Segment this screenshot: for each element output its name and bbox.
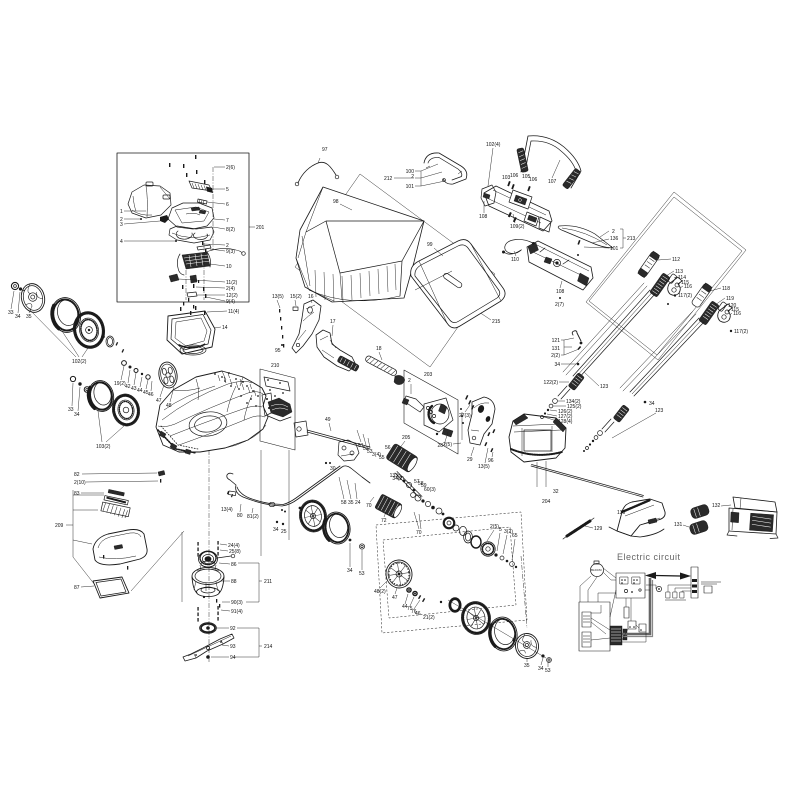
svg-text:13(5): 13(5): [272, 294, 284, 300]
svg-text:86: 86: [231, 562, 237, 568]
svg-text:132: 132: [712, 503, 721, 509]
svg-text:7: 7: [226, 218, 229, 224]
svg-text:2(10): 2(10): [74, 480, 86, 486]
svg-text:130: 130: [617, 510, 626, 516]
svg-text:92: 92: [230, 626, 236, 632]
svg-text:25: 25: [281, 529, 287, 535]
svg-text:131: 131: [552, 346, 561, 352]
svg-text:117(2): 117(2): [678, 293, 692, 299]
svg-text:33: 33: [8, 310, 14, 316]
svg-text:106: 106: [510, 173, 519, 179]
svg-text:70: 70: [366, 503, 372, 509]
svg-text:119: 119: [726, 296, 734, 302]
svg-text:211: 211: [264, 579, 272, 585]
svg-text:82: 82: [74, 472, 80, 478]
svg-text:35: 35: [348, 500, 354, 506]
svg-text:121: 121: [552, 338, 561, 344]
svg-text:32: 32: [553, 489, 559, 495]
svg-text:BLDCM: BLDCM: [591, 568, 602, 572]
svg-text:33: 33: [68, 407, 74, 413]
svg-text:15(2): 15(2): [290, 294, 302, 300]
svg-text:34: 34: [15, 314, 21, 320]
svg-text:204: 204: [542, 499, 551, 505]
svg-text:108: 108: [556, 289, 565, 295]
svg-text:34: 34: [273, 527, 279, 533]
svg-text:129: 129: [594, 526, 603, 532]
svg-text:35: 35: [26, 314, 32, 320]
svg-text:6: 6: [226, 202, 229, 208]
svg-text:97: 97: [322, 147, 328, 153]
svg-text:2(4): 2(4): [226, 286, 235, 292]
svg-text:99: 99: [427, 242, 433, 248]
svg-text:93: 93: [230, 644, 236, 650]
svg-text:46: 46: [148, 392, 154, 398]
svg-text:95: 95: [275, 348, 281, 354]
svg-text:3: 3: [120, 222, 123, 228]
svg-text:87: 87: [74, 585, 80, 591]
svg-text:29: 29: [467, 457, 473, 463]
svg-text:214: 214: [264, 644, 273, 650]
svg-text:48(2): 48(2): [374, 589, 386, 595]
svg-text:34: 34: [538, 666, 544, 672]
svg-text:13(4): 13(4): [221, 507, 233, 513]
svg-text:53: 53: [359, 571, 365, 577]
svg-text:103(2): 103(2): [96, 444, 111, 450]
svg-text:91(4): 91(4): [231, 609, 243, 615]
svg-text:28: 28: [437, 443, 443, 449]
svg-text:101: 101: [610, 246, 619, 252]
svg-text:81(2): 81(2): [247, 514, 259, 520]
svg-text:58: 58: [341, 500, 347, 506]
svg-text:34: 34: [554, 362, 560, 368]
svg-text:2: 2: [408, 378, 411, 384]
svg-text:65: 65: [512, 533, 518, 539]
svg-text:80: 80: [237, 513, 243, 519]
svg-text:5: 5: [226, 187, 229, 193]
svg-text:123: 123: [655, 408, 664, 414]
svg-text:43: 43: [131, 386, 137, 392]
svg-text:101: 101: [406, 184, 415, 190]
svg-text:122(2): 122(2): [544, 380, 559, 386]
svg-text:70: 70: [416, 530, 422, 536]
svg-text:13(5): 13(5): [478, 464, 490, 470]
svg-text:34(2): 34(2): [392, 476, 404, 482]
svg-text:53: 53: [545, 668, 551, 674]
svg-text:2: 2: [612, 229, 615, 235]
svg-text:72: 72: [381, 518, 387, 524]
svg-text:21(2): 21(2): [423, 615, 435, 621]
svg-text:9(3): 9(3): [226, 249, 235, 255]
svg-text:42: 42: [125, 384, 131, 390]
svg-text:203: 203: [424, 372, 433, 378]
svg-text:118: 118: [722, 286, 730, 292]
svg-text:136: 136: [610, 236, 619, 242]
svg-text:2(2): 2(2): [551, 353, 560, 359]
svg-text:49: 49: [325, 417, 331, 423]
svg-text:2(6): 2(6): [226, 165, 235, 171]
svg-text:8(2): 8(2): [226, 227, 235, 233]
svg-text:88: 88: [231, 579, 237, 585]
svg-text:34: 34: [347, 568, 353, 574]
svg-text:107: 107: [548, 179, 557, 185]
svg-text:102(2): 102(2): [72, 359, 87, 365]
svg-text:209: 209: [55, 523, 64, 529]
svg-text:46: 46: [415, 611, 421, 617]
svg-text:34: 34: [649, 401, 655, 407]
svg-text:55: 55: [379, 455, 385, 461]
svg-text:123: 123: [600, 384, 609, 390]
svg-text:35: 35: [524, 663, 530, 669]
svg-text:2: 2: [411, 174, 414, 180]
svg-text:25(8): 25(8): [229, 549, 241, 555]
svg-text:18: 18: [376, 346, 382, 352]
svg-text:27(3): 27(3): [459, 413, 471, 419]
svg-text:4: 4: [120, 239, 123, 245]
svg-text:205: 205: [402, 435, 411, 441]
svg-text:106: 106: [529, 177, 538, 183]
svg-text:17: 17: [330, 319, 336, 325]
svg-text:1: 1: [120, 209, 123, 215]
svg-text:9(4): 9(4): [226, 299, 235, 305]
svg-text:212: 212: [384, 176, 393, 182]
svg-text:94: 94: [230, 655, 236, 661]
svg-text:2(7): 2(7): [555, 302, 564, 308]
svg-text:90(3): 90(3): [231, 600, 243, 606]
svg-text:44: 44: [137, 388, 143, 394]
svg-text:83: 83: [74, 491, 80, 497]
svg-text:24: 24: [355, 500, 361, 506]
svg-text:56: 56: [385, 445, 391, 451]
svg-text:117(2): 117(2): [734, 329, 748, 335]
svg-text:109(2): 109(2): [510, 224, 525, 230]
svg-text:60(3): 60(3): [424, 487, 436, 493]
svg-text:110: 110: [511, 257, 519, 263]
svg-text:116: 116: [733, 311, 741, 317]
svg-text:16: 16: [308, 294, 314, 300]
svg-text:201: 201: [256, 225, 265, 231]
svg-text:10: 10: [226, 264, 232, 270]
svg-text:116: 116: [684, 284, 692, 290]
svg-text:108: 108: [479, 214, 488, 220]
svg-text:131: 131: [674, 522, 683, 528]
svg-text:14: 14: [222, 325, 228, 331]
svg-text:102(4): 102(4): [486, 142, 501, 148]
svg-text:210: 210: [271, 363, 280, 369]
svg-text:112: 112: [672, 257, 680, 263]
svg-text:11(4): 11(4): [228, 309, 240, 315]
svg-text:Electric circuit: Electric circuit: [617, 552, 681, 562]
svg-text:215: 215: [492, 319, 501, 325]
svg-text:47: 47: [156, 398, 162, 404]
svg-text:98: 98: [333, 199, 339, 205]
svg-text:213: 213: [627, 236, 636, 242]
svg-text:47: 47: [392, 595, 398, 601]
svg-text:34: 34: [74, 412, 80, 418]
